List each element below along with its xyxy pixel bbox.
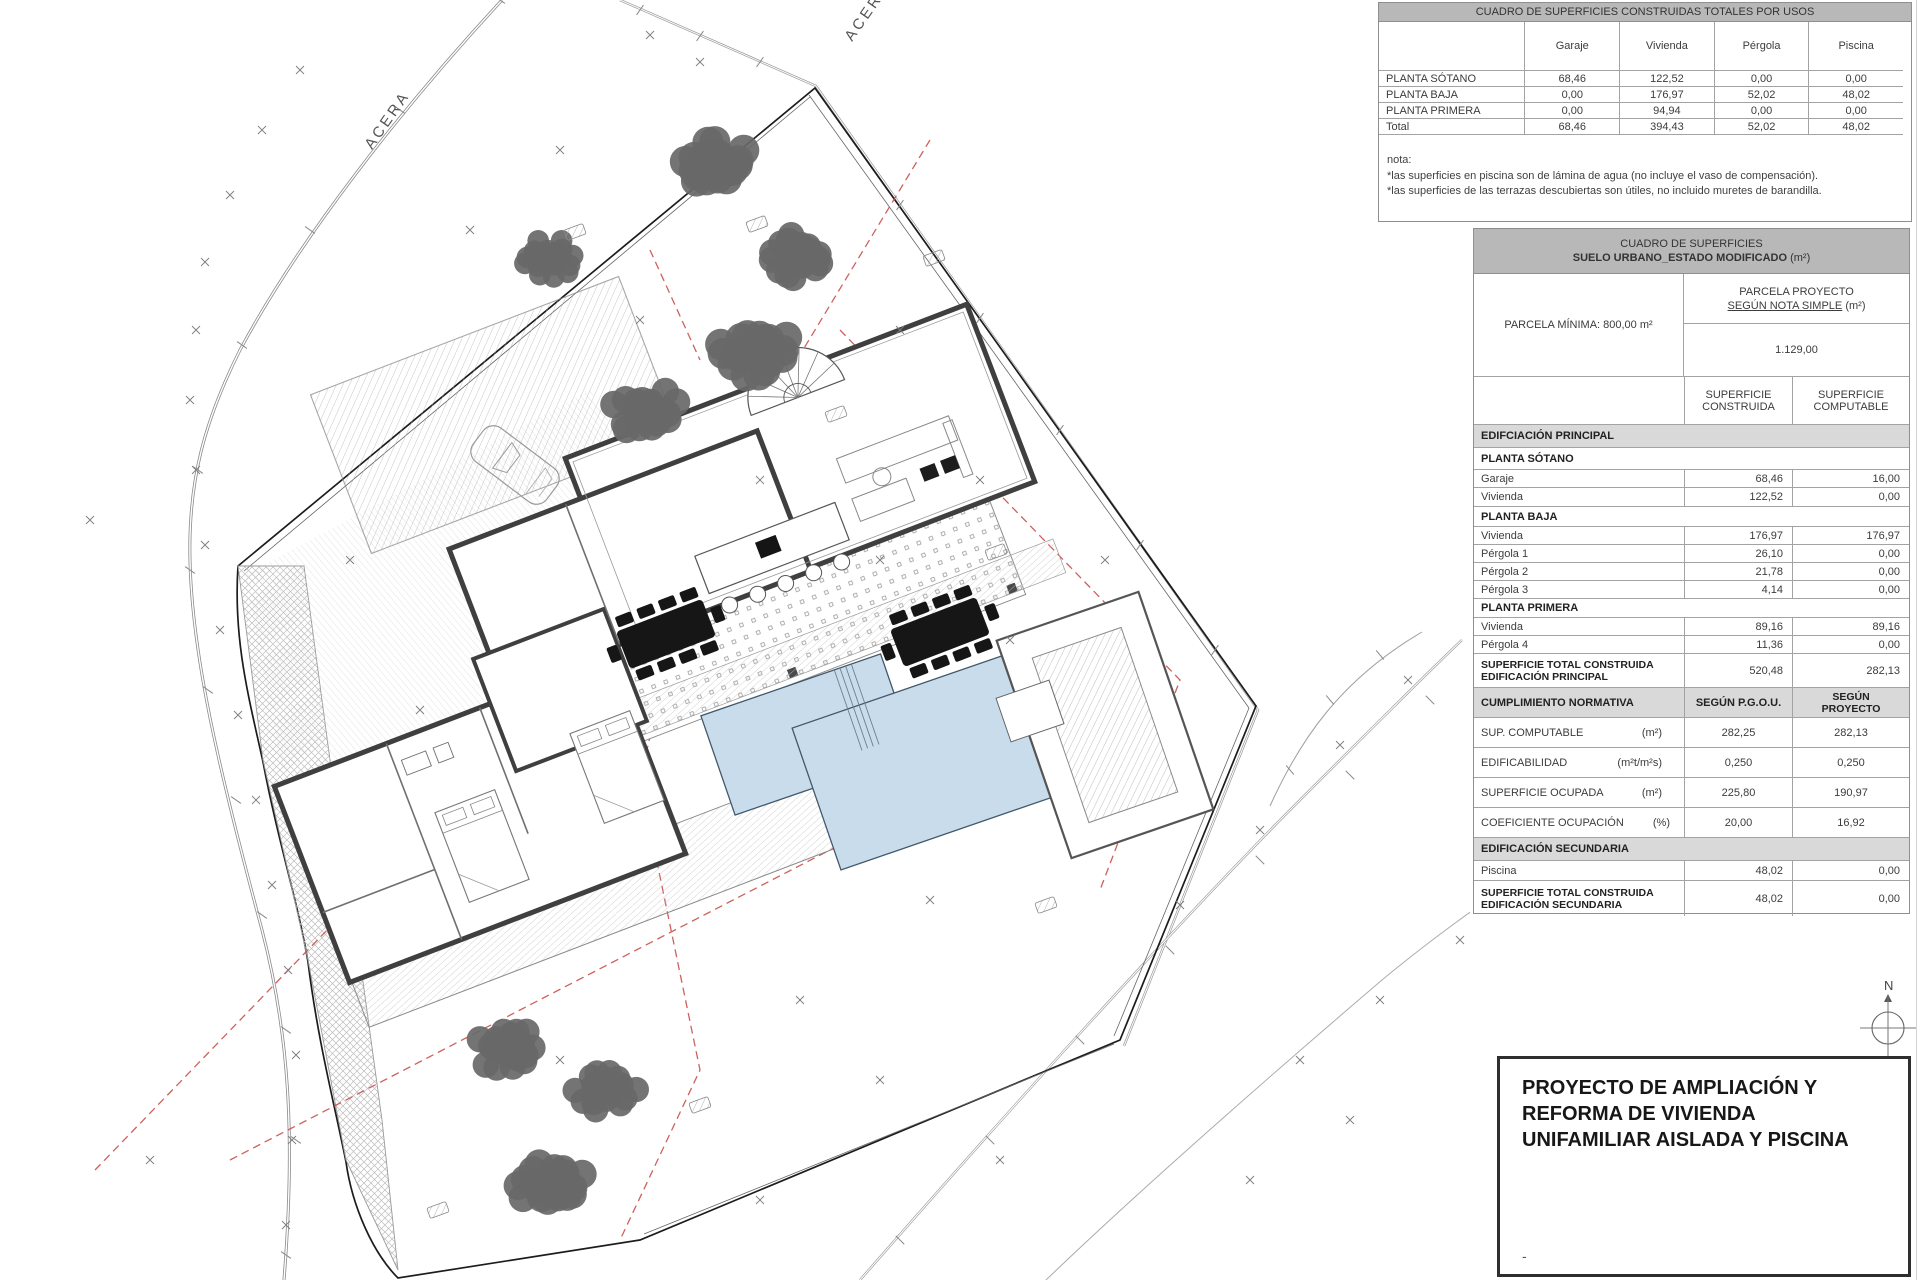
table-row: Garaje 68,46 16,00 [1474, 469, 1909, 487]
table-row: COEFICIENTE OCUPACIÓN (%) 20,00 16,92 [1474, 807, 1909, 837]
table-row: Vivienda 176,97 176,97 [1474, 526, 1909, 544]
section-planta-baja: PLANTA BAJA [1474, 507, 1909, 526]
parcela-proyecto-value: 1.129,00 [1684, 324, 1909, 376]
superficies-table-title: CUADRO DE SUPERFICIES SUELO URBANO_ESTAD… [1474, 229, 1909, 274]
table-row: Pérgola 4 11,36 0,00 [1474, 635, 1909, 653]
usos-notes: nota: *las superficies en piscina son de… [1387, 153, 1822, 200]
band-edificacion-secundaria: EDIFICACIÓN SECUNDARIA [1474, 838, 1909, 860]
site-plan-drawing: ACERA ACERA [0, 0, 1470, 1280]
usos-surfaces-table: CUADRO DE SUPERFICIES CONSTRUIDAS TOTALE… [1378, 2, 1912, 222]
project-title-line2: REFORMA DE VIVIENDA [1522, 1101, 1908, 1127]
table-row: SUPERFICIE OCUPADA (m²) 225,80 190,97 [1474, 777, 1909, 807]
note-line: *las superficies de las terrazas descubi… [1387, 184, 1822, 200]
table-row: Pérgola 1 26,10 0,00 [1474, 544, 1909, 562]
table-row: Pérgola 3 4,14 0,00 [1474, 580, 1909, 598]
usos-col-piscina: Piscina [1808, 22, 1903, 70]
cumplimiento-header-row: CUMPLIMIENTO NORMATIVA SEGÚN P.G.O.U. SE… [1474, 687, 1909, 717]
acera-label-north: ACERA [841, 0, 893, 44]
section-planta-sotano: PLANTA SÓTANO [1474, 448, 1909, 469]
superficies-title-line2: SUELO URBANO_ESTADO MODIFICADO [1573, 252, 1787, 264]
section-planta-primera: PLANTA PRIMERA [1474, 599, 1909, 617]
table-row: Piscina 48,02 0,00 [1474, 860, 1909, 880]
total-principal-row: SUPERFICIE TOTAL CONSTRUIDA EDIFICACIÓN … [1474, 653, 1909, 687]
project-title-block: PROYECTO DE AMPLIACIÓN Y REFORMA DE VIVI… [1497, 1056, 1911, 1277]
north-label: N [1884, 978, 1893, 993]
note-line: nota: [1387, 153, 1822, 169]
parcela-minima: PARCELA MÍNIMA: 800,00 m² [1474, 274, 1683, 376]
note-line: *las superficies en piscina son de lámin… [1387, 169, 1822, 185]
table-row: EDIFICABILIDAD (m²t/m²s) 0,250 0,250 [1474, 747, 1909, 777]
usos-col-pergola: Pérgola [1714, 22, 1809, 70]
sheet-edge-line [1916, 0, 1917, 1280]
project-title-line3: UNIFAMILIAR AISLADA Y PISCINA [1522, 1127, 1908, 1153]
usos-col-vivienda: Vivienda [1619, 22, 1714, 70]
table-row: Vivienda 122,52 0,00 [1474, 487, 1909, 506]
table-row: SUP. COMPUTABLE (m²) 282,25 282,13 [1474, 717, 1909, 747]
superficies-table: CUADRO DE SUPERFICIES SUELO URBANO_ESTAD… [1473, 228, 1910, 914]
col-superficie-computable: SUPERFICIE COMPUTABLE [1792, 377, 1909, 424]
project-title-line1: PROYECTO DE AMPLIACIÓN Y [1522, 1075, 1908, 1101]
total-secundaria-row: SUPERFICIE TOTAL CONSTRUIDA EDIFICACIÓN … [1474, 880, 1909, 916]
title-block-mark: - [1522, 1248, 1527, 1264]
north-arrow: N [1848, 966, 1920, 1066]
parcela-proyecto-header: PARCELA PROYECTO SEGÚN NOTA SIMPLE (m²) [1684, 274, 1909, 324]
superficies-title-line1: CUADRO DE SUPERFICIES [1620, 237, 1762, 251]
table-row: Vivienda 89,16 89,16 [1474, 617, 1909, 635]
usos-col-garaje: Garaje [1524, 22, 1619, 70]
table-row: PLANTA PRIMERA 0,00 94,94 0,00 0,00 [1379, 102, 1903, 118]
table-row: PLANTA BAJA 0,00 176,97 52,02 48,02 [1379, 86, 1903, 102]
secondary-structure [996, 592, 1213, 858]
usos-table-title: CUADRO DE SUPERFICIES CONSTRUIDAS TOTALE… [1379, 3, 1911, 22]
band-edificacion-principal: EDIFCIACIÓN PRINCIPAL [1474, 425, 1909, 447]
table-row: PLANTA SÓTANO 68,46 122,52 0,00 0,00 [1379, 70, 1903, 86]
col-superficie-construida: SUPERFICIE CONSTRUIDA [1684, 377, 1792, 424]
table-row: Pérgola 2 21,78 0,00 [1474, 562, 1909, 580]
drawing-sheet: ACERA ACERA CUADRO DE SUPERFICIES CONSTR… [0, 0, 1920, 1280]
acera-label-west: ACERA [361, 88, 413, 152]
table-row-total: Total 68,46 394,43 52,02 48,02 [1379, 118, 1903, 135]
superficies-title-unit: (m²) [1790, 252, 1810, 264]
